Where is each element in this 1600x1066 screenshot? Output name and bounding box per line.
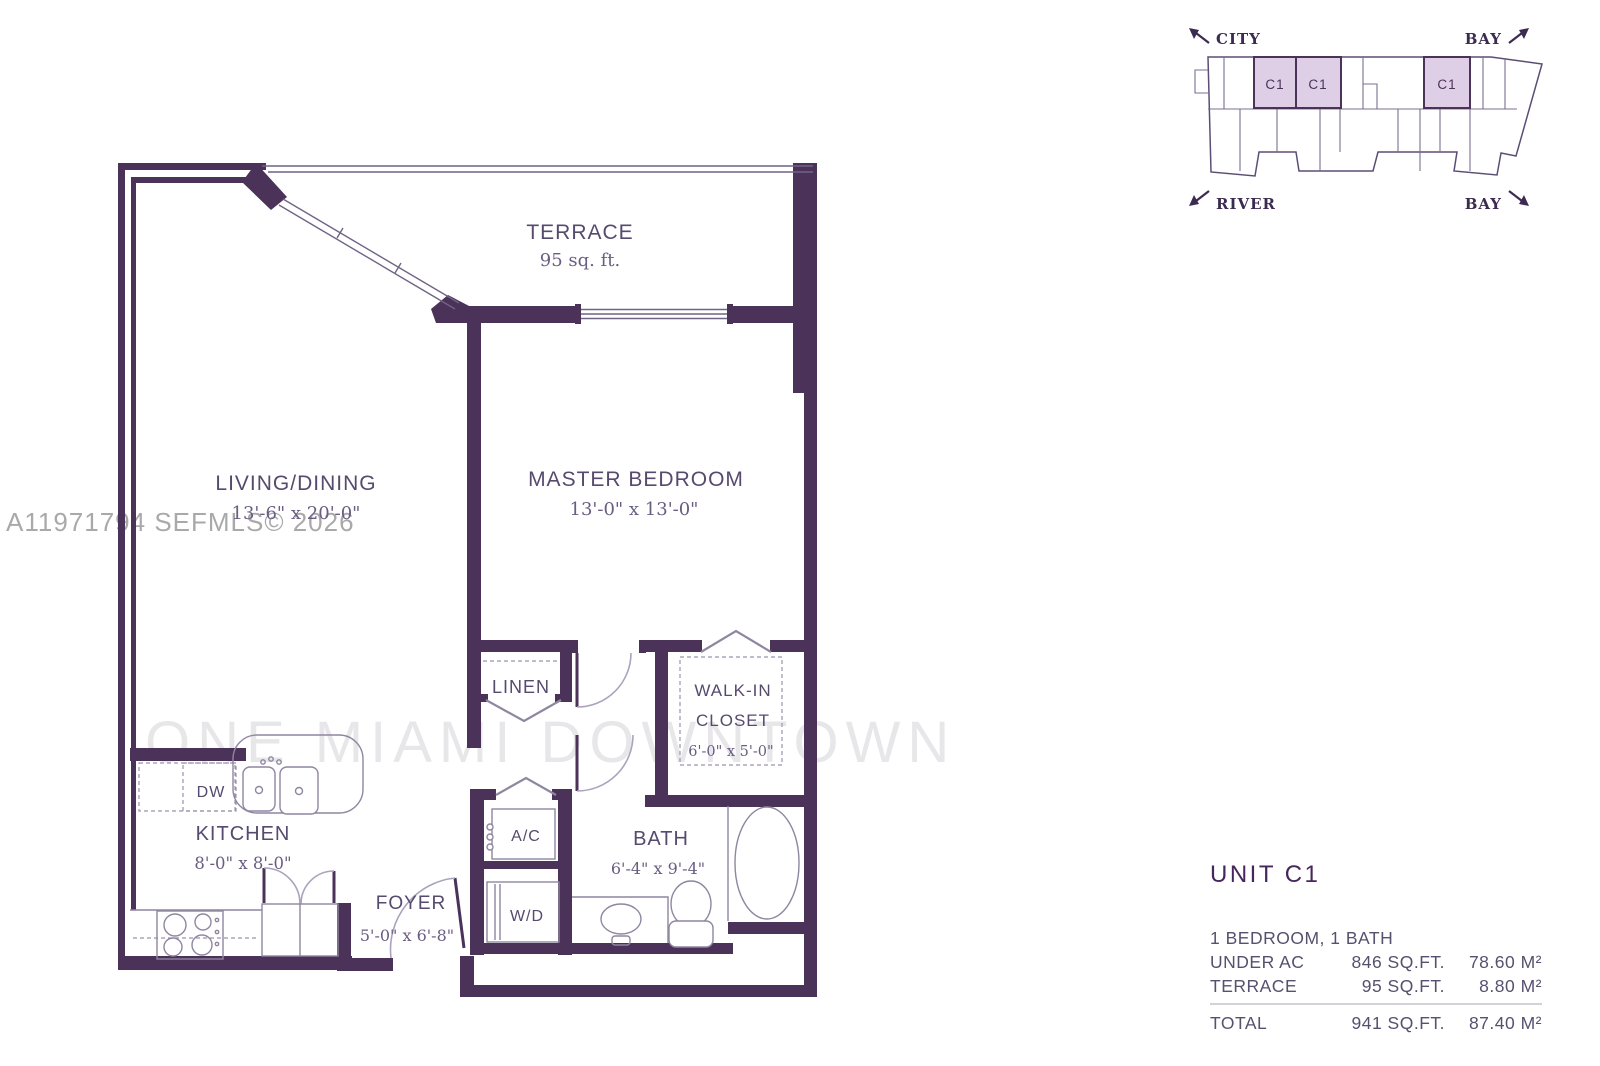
wall-segment xyxy=(118,163,266,170)
unit-info-panel: UNIT C1 1 BEDROOM, 1 BATH UNDER AC 846 S… xyxy=(1210,860,1542,1035)
stove-burner xyxy=(164,938,182,956)
bathtub xyxy=(735,807,799,919)
walkin-dims: 6'-0" x 5'-0" xyxy=(688,744,773,760)
wall-segment xyxy=(645,640,697,652)
foyer-dims: 5'-0" x 6'-8" xyxy=(360,926,454,945)
site-keymap: CITY BAY RIVER BAY xyxy=(1189,28,1542,213)
compass-bay-top-arrow-icon xyxy=(1509,28,1529,43)
ac-valve xyxy=(487,824,493,830)
wall-segment xyxy=(470,789,496,800)
area-m2: 78.60 M² xyxy=(1445,950,1542,974)
keymap-unit-c1-label: C1 xyxy=(1265,77,1284,92)
living-dims: 13'-6" x 20'-0" xyxy=(232,503,361,524)
floorplan: TERRACE 95 sq. ft. LIVING/DINING 13'-6" … xyxy=(118,163,817,997)
wall-segment xyxy=(655,652,668,797)
wall-segment xyxy=(770,640,804,652)
stove-knob xyxy=(215,930,218,933)
dishwasher-label: DW xyxy=(197,784,226,801)
glass-wall xyxy=(279,205,455,309)
wall-segment xyxy=(130,748,246,761)
wall-segment xyxy=(645,795,817,807)
wall-segment xyxy=(793,386,804,392)
stove-burner xyxy=(164,914,186,936)
glass-mullion xyxy=(337,228,343,238)
compass-city-arrow-icon xyxy=(1189,28,1209,43)
master-door-arc xyxy=(577,653,631,707)
compass-bay-bottom-label: BAY xyxy=(1465,195,1502,213)
pantry-door-arc xyxy=(301,871,334,904)
ac-valve xyxy=(487,834,493,840)
kitchen-sink xyxy=(243,767,275,811)
wall-segment xyxy=(558,795,572,955)
toilet-tank xyxy=(669,921,713,947)
area-label: TERRACE xyxy=(1210,974,1310,998)
compass-bay-bottom-arrow-icon xyxy=(1509,191,1529,206)
compass-river-label: RIVER xyxy=(1216,195,1276,213)
wall-segment xyxy=(465,306,578,323)
compass-river-arrow-icon xyxy=(1189,191,1209,206)
walkin-label-line2: CLOSET xyxy=(696,711,770,730)
bath-sink xyxy=(601,904,641,934)
bath-dims: 6'-4" x 9'-4" xyxy=(611,859,705,878)
unit-title: UNIT C1 xyxy=(1210,860,1542,890)
area-m2: 87.40 M² xyxy=(1445,1011,1542,1035)
door-jamb xyxy=(572,640,578,653)
building-notch xyxy=(1195,70,1208,93)
area-sqft: 95 SQ.FT. xyxy=(1310,974,1445,998)
wall-segment xyxy=(337,903,351,971)
wall-segment xyxy=(793,163,817,393)
wall-segment xyxy=(481,861,558,869)
total-divider: TOTAL 941 SQ.FT. 87.40 M² xyxy=(1210,1003,1542,1035)
ac-valve xyxy=(487,844,493,850)
terrace-label: TERRACE xyxy=(526,221,633,244)
kitchen-label: KITCHEN xyxy=(196,823,291,845)
window-jamb xyxy=(575,304,581,324)
toilet-bowl xyxy=(671,881,711,927)
foyer-label: FOYER xyxy=(376,893,446,914)
area-label: TOTAL xyxy=(1210,1011,1310,1035)
stove-burner xyxy=(195,914,211,930)
area-row-total: TOTAL 941 SQ.FT. 87.40 M² xyxy=(1210,1011,1542,1035)
wall-segment xyxy=(118,163,125,970)
pantry-door-arc xyxy=(264,868,300,904)
wd-label: W/D xyxy=(510,908,544,925)
wall-segment xyxy=(728,922,808,934)
bath-label: BATH xyxy=(633,828,689,850)
wall-segment xyxy=(350,958,393,971)
area-sqft: 941 SQ.FT. xyxy=(1310,1011,1445,1035)
wall-segment xyxy=(460,956,474,988)
stove-knob xyxy=(215,918,218,921)
stove-burner xyxy=(192,935,212,955)
ac-bifold-door xyxy=(496,778,556,795)
wall-segment xyxy=(728,306,804,323)
area-row-terrace: TERRACE 95 SQ.FT. 8.80 M² xyxy=(1210,974,1542,998)
wall-segment xyxy=(460,985,817,997)
area-row-under-ac: UNDER AC 846 SQ.FT. 78.60 M² xyxy=(1210,950,1542,974)
linen-label: LINEN xyxy=(492,677,550,697)
wall-segment xyxy=(131,177,136,910)
master-label: MASTER BEDROOM xyxy=(528,468,744,491)
walkin-label-line1: WALK-IN xyxy=(694,681,771,700)
door-jamb xyxy=(694,640,702,652)
entry-door-leaf xyxy=(455,878,464,948)
glass-wall xyxy=(283,199,459,303)
wall-segment xyxy=(481,640,572,652)
walkin-bifold-door xyxy=(701,631,771,652)
floorplan-page: ONE MIAMI DOWNTOWN A11971794 SEFMLS© 202… xyxy=(0,0,1600,1066)
wall-segment xyxy=(118,956,352,970)
wall-segment xyxy=(131,177,253,183)
keymap-unit-c1-label: C1 xyxy=(1437,77,1456,92)
living-label: LIVING/DINING xyxy=(215,472,376,495)
wall-segment xyxy=(470,795,484,955)
stove-knob xyxy=(215,942,218,945)
unit-subtitle: 1 BEDROOM, 1 BATH xyxy=(1210,926,1542,950)
terrace-area: 95 sq. ft. xyxy=(540,250,620,271)
kitchen-dims: 8'-0" x 8'-0" xyxy=(194,854,291,873)
keymap-unit-c1-label: C1 xyxy=(1308,77,1327,92)
area-sqft: 846 SQ.FT. xyxy=(1310,950,1445,974)
entry-door-arc xyxy=(391,878,455,958)
kitchen-sink xyxy=(280,767,318,814)
window-jamb xyxy=(727,304,733,324)
compass-city-label: CITY xyxy=(1216,30,1261,48)
brand-watermark: ONE MIAMI DOWNTOWN xyxy=(145,710,956,775)
master-dims: 13'-0" x 13'-0" xyxy=(570,499,699,520)
door-jamb xyxy=(639,640,646,653)
wall-segment xyxy=(467,322,481,748)
wall-segment xyxy=(804,391,817,997)
compass-bay-top-label: BAY xyxy=(1465,30,1502,48)
room-labels: TERRACE 95 sq. ft. LIVING/DINING 13'-6" … xyxy=(194,221,773,945)
ac-label: A/C xyxy=(511,828,541,845)
wall-corner-cap xyxy=(242,163,287,210)
area-label: UNDER AC xyxy=(1210,950,1310,974)
area-m2: 8.80 M² xyxy=(1445,974,1542,998)
